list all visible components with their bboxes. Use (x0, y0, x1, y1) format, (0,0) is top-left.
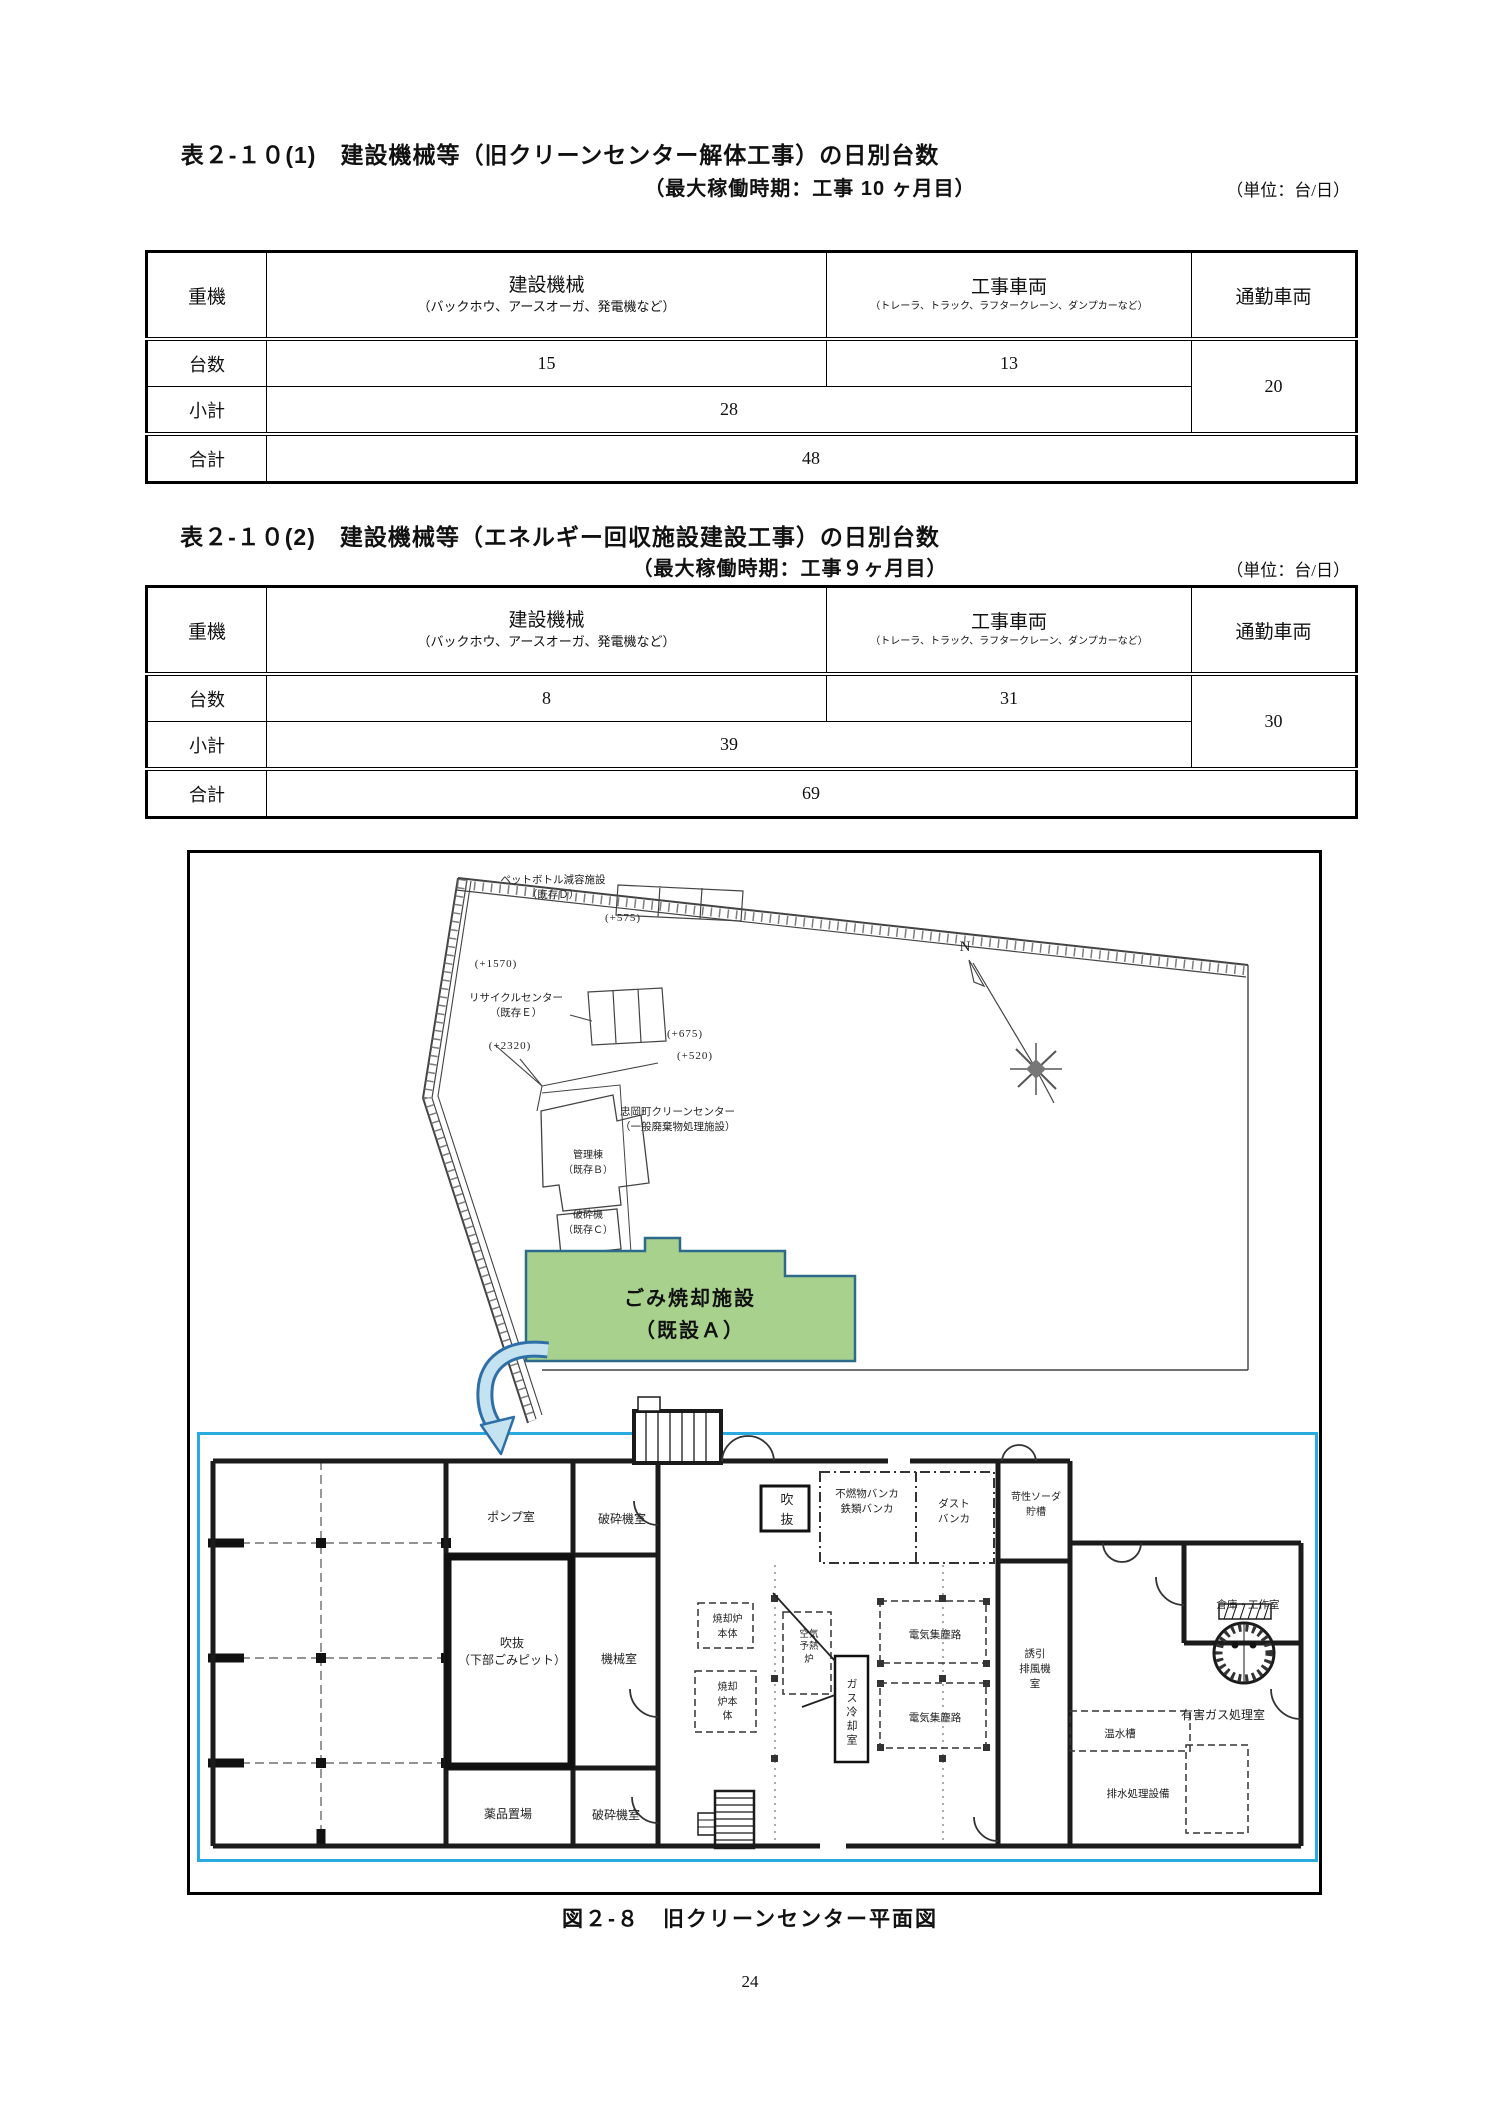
table2-row-total-label: 合計 (147, 769, 267, 818)
table2-subtotal: 39 (267, 722, 1192, 770)
room-label-hot-water: 温水槽 (1075, 1727, 1165, 1742)
table1-vehicles-count: 13 (827, 339, 1192, 387)
figure-caption: 図２-８ 旧クリーンセンター平面図 (0, 1903, 1500, 1933)
room-label-ep-upper: 電気集塵路 (875, 1628, 995, 1643)
table2-col-machines-note: （バックホウ、アースオーガ、発電機など） (267, 634, 826, 651)
table1-row-total-label: 合計 (147, 434, 267, 483)
site-label-admin: 管理棟 （既存Ｂ） (540, 1149, 636, 1178)
table1-row-count-label: 台数 (147, 339, 267, 387)
table2-col-vehicles-note: （トレーラ、トラック、ラフタークレーン、ダンプカーなど） (827, 636, 1191, 649)
table1: 重機 建設機械 （バックホウ、アースオーガ、発電機など） 工事車両 （トレーラ、… (145, 250, 1358, 484)
site-label-elev-1570: (+1570) (458, 957, 534, 973)
site-label-clean-center: 忠岡町クリーンセンター （一般廃棄物処理施設） (620, 1105, 820, 1135)
room-label-gas-cooling: ガス冷却室 (842, 1665, 858, 1761)
table2-row-count-label: 台数 (147, 674, 267, 722)
table2-unit: （単位：台/日） (1160, 556, 1350, 581)
site-label-crusher: 破砕機 （既存Ｃ） (540, 1209, 636, 1238)
table2-subtitle: （最大稼働時期：工事９ヶ月目） (560, 552, 1020, 581)
site-label-pet-bottle: ペットボトル減容施設 （既存Ｄ） (478, 873, 628, 903)
page-number: 24 (0, 1972, 1500, 1992)
table2-row-count: 台数 8 31 30 (147, 674, 1357, 722)
table1-row-subtotal: 小計 28 (147, 387, 1357, 435)
site-label-incinerator: ごみ焼却施設 （既設Ａ） (570, 1283, 810, 1347)
room-label-preheater: 空気 予熱 炉 (786, 1629, 832, 1666)
room-label-induced-fan: 誘引 排風機 室 (1000, 1647, 1070, 1693)
table1-col-machines: 建設機械 （バックホウ、アースオーガ、発電機など） (267, 252, 827, 340)
table2-vehicles-count: 31 (827, 674, 1192, 722)
table1-col-vehicles-note: （トレーラ、トラック、ラフタークレーン、ダンプカーなど） (827, 301, 1191, 314)
north-indicator-label: N (950, 937, 980, 959)
table1-machines-count: 15 (267, 339, 827, 387)
floor-plan-panel: ポンプ室 破砕機室 吹 抜 不燃物バンカ 鉄類バンカ ダスト バンカ 苛性ソーダ… (197, 1432, 1318, 1862)
table1-row-total: 合計 48 (147, 434, 1357, 483)
room-label-drainage: 排水処理設備 (1068, 1787, 1208, 1802)
table1-col-commute: 通勤車両 (1192, 252, 1357, 340)
table1-row-subtotal-label: 小計 (147, 387, 267, 435)
table1-col-machines-label: 建設機械 (267, 274, 826, 299)
table2-commute-count: 30 (1192, 674, 1357, 769)
table2-col-machines: 建設機械 （バックホウ、アースオーガ、発電機など） (267, 587, 827, 675)
room-label-pump: ポンプ室 (456, 1509, 566, 1526)
table2-title: 表２-１０(2) 建設機械等（エネルギー回収施設建設工事）の日別台数 (145, 518, 975, 552)
table1-total: 48 (267, 434, 1357, 483)
site-label-recycle: リサイクルセンター （既存Ｅ） (446, 991, 586, 1021)
table2-col-vehicles-label: 工事車両 (827, 611, 1191, 636)
table2-row-subtotal: 小計 39 (147, 722, 1357, 770)
table1-title: 表２-１０(1) 建設機械等（旧クリーンセンター解体工事）の日別台数 (145, 136, 975, 170)
room-label-crusher-top: 破砕機室 (572, 1511, 672, 1528)
room-label-chemical: 薬品置場 (458, 1806, 558, 1823)
room-label-machine: 機械室 (579, 1651, 659, 1668)
table1-unit: （単位：台/日） (1160, 176, 1350, 201)
table2-col-machines-label: 建設機械 (267, 609, 826, 634)
table1-col-juki: 重機 (147, 252, 267, 340)
room-label-pit: 吹抜 （下部ごみピット） (437, 1635, 587, 1670)
room-label-warehouse: 倉庫・工作室 (1188, 1598, 1308, 1613)
site-label-elev-575: (+575) (588, 911, 658, 927)
room-label-bunker: 不燃物バンカ 鉄類バンカ (812, 1487, 922, 1517)
room-label-ep-lower: 電気集塵路 (875, 1711, 995, 1726)
figure-box: ペットボトル減容施設 （既存Ｄ） (+575) (+1570) リサイクルセンタ… (187, 850, 1322, 1895)
table2-col-vehicles: 工事車両 （トレーラ、トラック、ラフタークレーン、ダンプカーなど） (827, 587, 1192, 675)
site-label-elev-675: (+675) (650, 1027, 720, 1043)
table2-header-row: 重機 建設機械 （バックホウ、アースオーガ、発電機など） 工事車両 （トレーラ、… (147, 587, 1357, 675)
table1-header-row: 重機 建設機械 （バックホウ、アースオーガ、発電機など） 工事車両 （トレーラ、… (147, 252, 1357, 340)
table1-col-machines-note: （バックホウ、アースオーガ、発電機など） (267, 299, 826, 316)
room-label-soda-tank: 苛性ソーダ 貯槽 (994, 1491, 1078, 1520)
site-label-elev-520: (+520) (660, 1049, 730, 1065)
site-plan-drawing (190, 853, 1325, 1463)
table1-col-vehicles: 工事車両 （トレーラ、トラック、ラフタークレーン、ダンプカーなど） (827, 252, 1192, 340)
room-label-toxic-gas: 有害ガス処理室 (1148, 1707, 1298, 1724)
room-label-furnace-lower: 焼却 炉本 体 (700, 1681, 755, 1725)
room-label-atrium: 吹 抜 (763, 1490, 811, 1530)
table2-row-subtotal-label: 小計 (147, 722, 267, 770)
table1-row-count: 台数 15 13 20 (147, 339, 1357, 387)
table1-commute-count: 20 (1192, 339, 1357, 434)
table2-machines-count: 8 (267, 674, 827, 722)
table2-col-commute: 通勤車両 (1192, 587, 1357, 675)
table2-total: 69 (267, 769, 1357, 818)
room-label-crusher-bottom: 破砕機室 (566, 1807, 666, 1824)
room-label-furnace-upper: 焼却炉 本体 (700, 1613, 755, 1642)
table2-col-juki: 重機 (147, 587, 267, 675)
table1-col-vehicles-label: 工事車両 (827, 276, 1191, 301)
table1-subtotal: 28 (267, 387, 1192, 435)
room-label-dust-bunker: ダスト バンカ (915, 1497, 993, 1527)
table2: 重機 建設機械 （バックホウ、アースオーガ、発電機など） 工事車両 （トレーラ、… (145, 585, 1358, 819)
table1-subtitle: （最大稼働時期：工事 10 ヶ月目） (560, 172, 1060, 201)
table2-row-total: 合計 69 (147, 769, 1357, 818)
site-label-elev-2320: (+2320) (472, 1039, 548, 1055)
